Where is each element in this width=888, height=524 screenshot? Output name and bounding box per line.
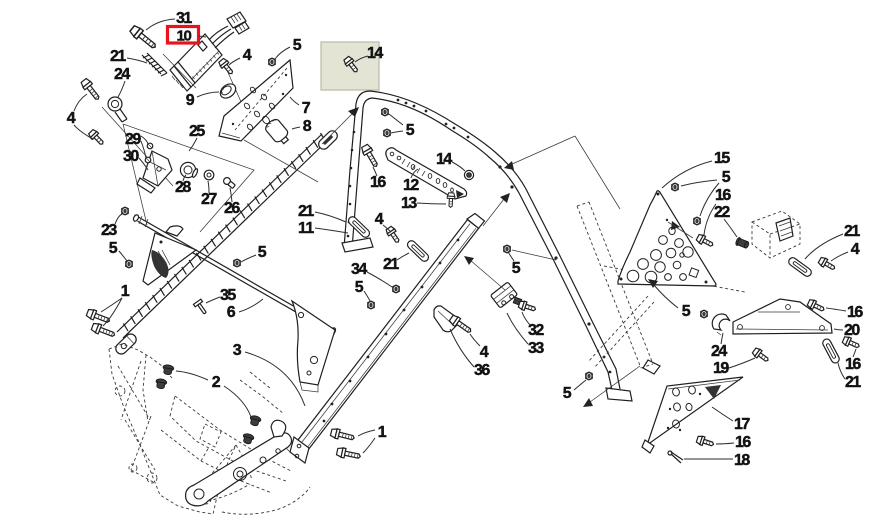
svg-text:14: 14 [367,45,383,62]
svg-text:25: 25 [189,123,205,140]
svg-text:15: 15 [714,150,730,167]
svg-text:31: 31 [176,10,192,27]
svg-text:5: 5 [355,279,364,296]
svg-text:36: 36 [474,362,490,379]
svg-text:30: 30 [123,148,139,165]
svg-text:5: 5 [512,260,521,277]
svg-text:8: 8 [303,118,312,135]
svg-text:19: 19 [713,360,729,377]
svg-text:33: 33 [528,340,544,357]
svg-text:32: 32 [528,322,544,339]
svg-text:10: 10 [177,28,192,45]
svg-text:17: 17 [734,416,750,433]
svg-text:22: 22 [714,204,730,221]
svg-text:5: 5 [293,37,302,54]
svg-text:16: 16 [847,304,863,321]
svg-text:9: 9 [186,92,195,109]
svg-text:5: 5 [682,303,691,320]
svg-text:16: 16 [370,174,386,191]
svg-text:5: 5 [722,169,731,186]
svg-text:29: 29 [125,131,141,148]
svg-text:16: 16 [715,187,731,204]
svg-text:21: 21 [298,203,314,220]
svg-text:4: 4 [243,47,252,64]
svg-text:24: 24 [711,343,727,360]
svg-text:7: 7 [302,100,311,117]
svg-text:18: 18 [734,452,750,469]
svg-text:26: 26 [224,200,240,217]
svg-text:2: 2 [212,374,221,391]
svg-text:5: 5 [563,385,572,402]
svg-text:35: 35 [220,287,236,304]
svg-text:20: 20 [844,322,860,339]
svg-text:4: 4 [851,241,860,258]
svg-text:5: 5 [406,122,415,139]
svg-text:4: 4 [480,344,489,361]
svg-text:23: 23 [101,222,117,239]
svg-text:5: 5 [109,240,118,257]
svg-text:11: 11 [298,220,314,237]
svg-text:14: 14 [436,151,452,168]
svg-text:34: 34 [351,261,367,278]
svg-text:3: 3 [233,342,242,359]
svg-text:13: 13 [401,195,417,212]
svg-text:21: 21 [110,48,126,65]
svg-text:16: 16 [845,356,861,373]
svg-text:1: 1 [378,424,387,441]
svg-text:5: 5 [258,244,267,261]
svg-text:12: 12 [403,177,419,194]
svg-text:4: 4 [67,110,76,127]
svg-text:16: 16 [735,434,751,451]
svg-text:24: 24 [114,66,130,83]
svg-text:1: 1 [121,283,130,300]
svg-text:28: 28 [175,179,191,196]
svg-text:6: 6 [227,304,236,321]
svg-text:21: 21 [845,374,861,391]
svg-text:21: 21 [383,256,399,273]
svg-text:27: 27 [201,191,217,208]
svg-text:21: 21 [844,223,860,240]
svg-text:4: 4 [375,211,384,228]
